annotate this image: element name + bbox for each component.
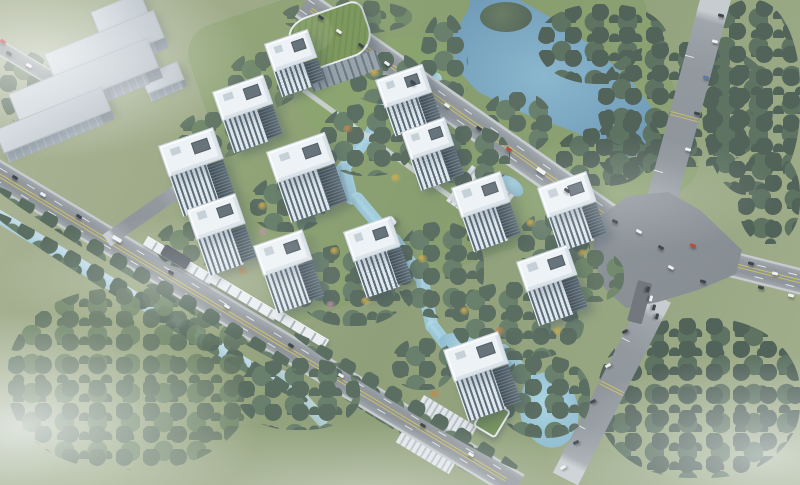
rooftop-equipment <box>372 225 389 241</box>
car <box>758 285 765 289</box>
autumn-tree-accent <box>578 249 588 257</box>
rooftop-equipment <box>291 38 307 53</box>
autumn-tree-accent <box>553 327 563 335</box>
rooftop-equipment <box>411 133 421 142</box>
rooftop-equipment <box>264 246 275 256</box>
tree-cluster <box>392 338 454 390</box>
autumn-tree-accent <box>460 307 470 315</box>
autumn-tree-accent <box>430 390 440 398</box>
rooftop-equipment <box>462 188 473 198</box>
autumn-tree-accent <box>238 267 248 275</box>
rooftop-equipment <box>481 181 499 197</box>
rooftop-equipment <box>170 146 182 156</box>
rooftop-equipment <box>301 142 322 159</box>
car <box>788 293 795 297</box>
rooftop-equipment <box>428 126 444 141</box>
autumn-tree-accent <box>258 228 268 236</box>
rooftop-equipment <box>216 203 234 219</box>
rooftop-equipment <box>197 210 208 220</box>
rooftop-equipment <box>385 80 395 89</box>
scene <box>0 0 800 485</box>
autumn-tree-accent <box>391 174 401 182</box>
rooftop-equipment <box>223 92 234 102</box>
rooftop-equipment <box>567 181 585 197</box>
autumn-tree-accent <box>258 202 268 210</box>
autumn-tree-accent <box>526 219 536 227</box>
rooftop-equipment <box>548 188 559 198</box>
rooftop-equipment <box>527 262 538 272</box>
rooftop-equipment <box>547 254 565 270</box>
autumn-tree-accent <box>330 247 340 255</box>
aerial-site-plan <box>0 0 800 485</box>
rooftop-equipment <box>243 84 261 100</box>
autumn-tree-accent <box>343 125 353 133</box>
river-island <box>480 2 532 32</box>
tree-cluster <box>738 152 800 244</box>
tree-cluster <box>596 116 662 178</box>
rooftop-equipment <box>274 45 284 54</box>
rooftop-equipment <box>283 239 301 255</box>
rooftop-equipment <box>353 232 363 242</box>
autumn-tree-accent <box>418 255 428 263</box>
rooftop-equipment <box>455 350 467 361</box>
rooftop-equipment <box>476 342 496 359</box>
autumn-tree-accent <box>326 301 336 309</box>
rooftop-equipment <box>278 151 291 162</box>
autumn-tree-accent <box>361 297 371 305</box>
autumn-tree-accent <box>370 69 380 77</box>
rooftop-equipment <box>191 137 211 154</box>
